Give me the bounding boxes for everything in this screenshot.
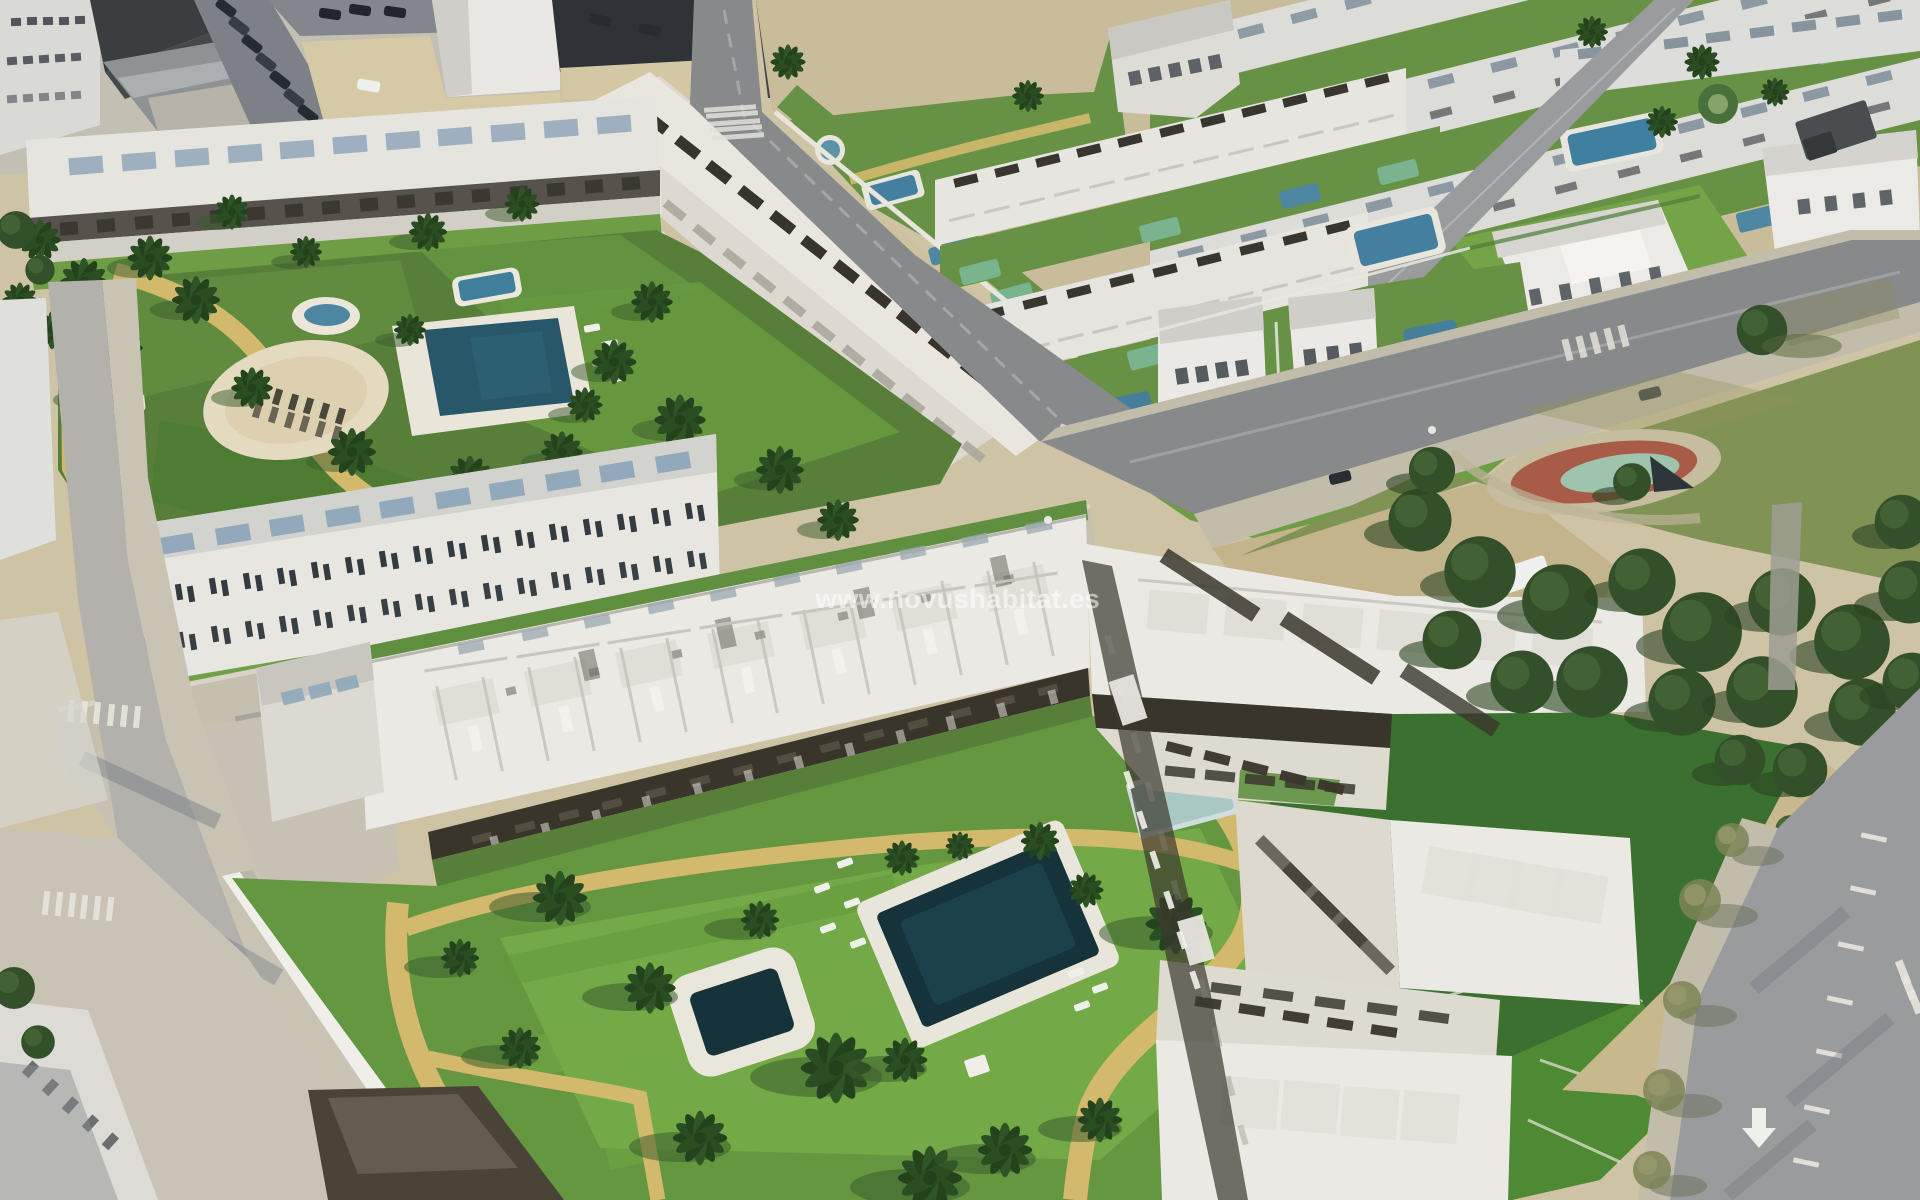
svg-text:www.novushabitat.es: www.novushabitat.es [815, 584, 1101, 614]
